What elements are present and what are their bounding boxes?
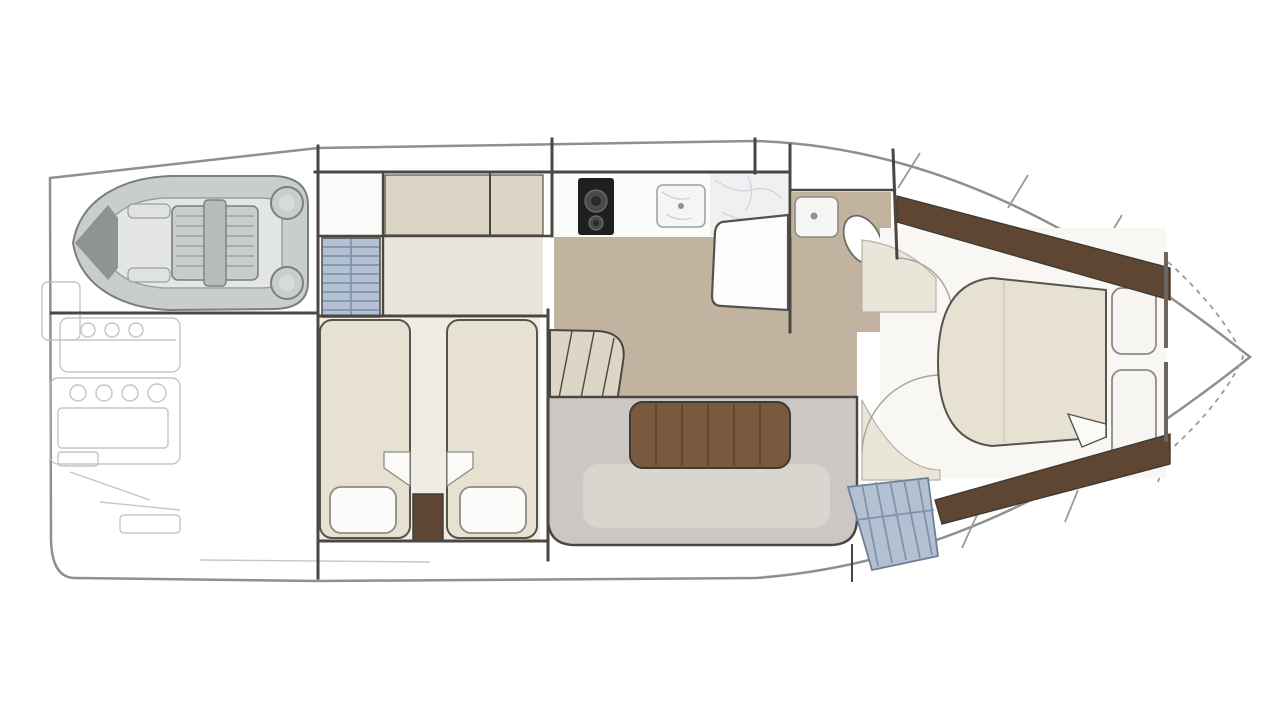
tender-seat-top xyxy=(128,204,170,218)
stair-landing-floor xyxy=(383,237,543,316)
guest-bed-right: Guest berth starboard xyxy=(447,320,537,538)
salon-side-seat: Salon side seat xyxy=(712,215,788,310)
stove: Two-burner stove xyxy=(578,178,614,235)
guest-bed-left: Guest berth port xyxy=(320,320,410,538)
storage-locker xyxy=(320,175,382,235)
yacht-floor-plan: Hull outline Engine room machinery Tende… xyxy=(0,0,1280,720)
guest-nightstand xyxy=(413,494,443,541)
bathroom-basin: Wash basin xyxy=(795,197,838,237)
tender-seat-bottom xyxy=(128,268,170,282)
salon-steps: Salon entry steps xyxy=(550,330,624,404)
companionway-stairs: Companionway stairs xyxy=(322,238,380,317)
galley-cabinet xyxy=(385,175,543,235)
tender-cap-inner-top xyxy=(279,195,295,211)
salon-table: Salon wood table xyxy=(630,402,790,468)
master-cabin: Master cabin Island double bed Wardrobe … xyxy=(862,196,1170,524)
settee-cushions xyxy=(583,464,830,528)
floor-plan-page: Hull outline Engine room machinery Tende… xyxy=(0,0,1280,720)
master-bed: Island double bed xyxy=(938,278,1106,447)
tender-outboard-motor xyxy=(172,200,258,286)
tender-cap-inner-bottom xyxy=(279,275,295,291)
galley-sink: Galley sink xyxy=(657,185,705,227)
tender-dinghy: Inflatable tender dinghy xyxy=(73,176,308,310)
bed-head-panel-top xyxy=(1112,288,1156,354)
sink-drain xyxy=(678,203,684,209)
